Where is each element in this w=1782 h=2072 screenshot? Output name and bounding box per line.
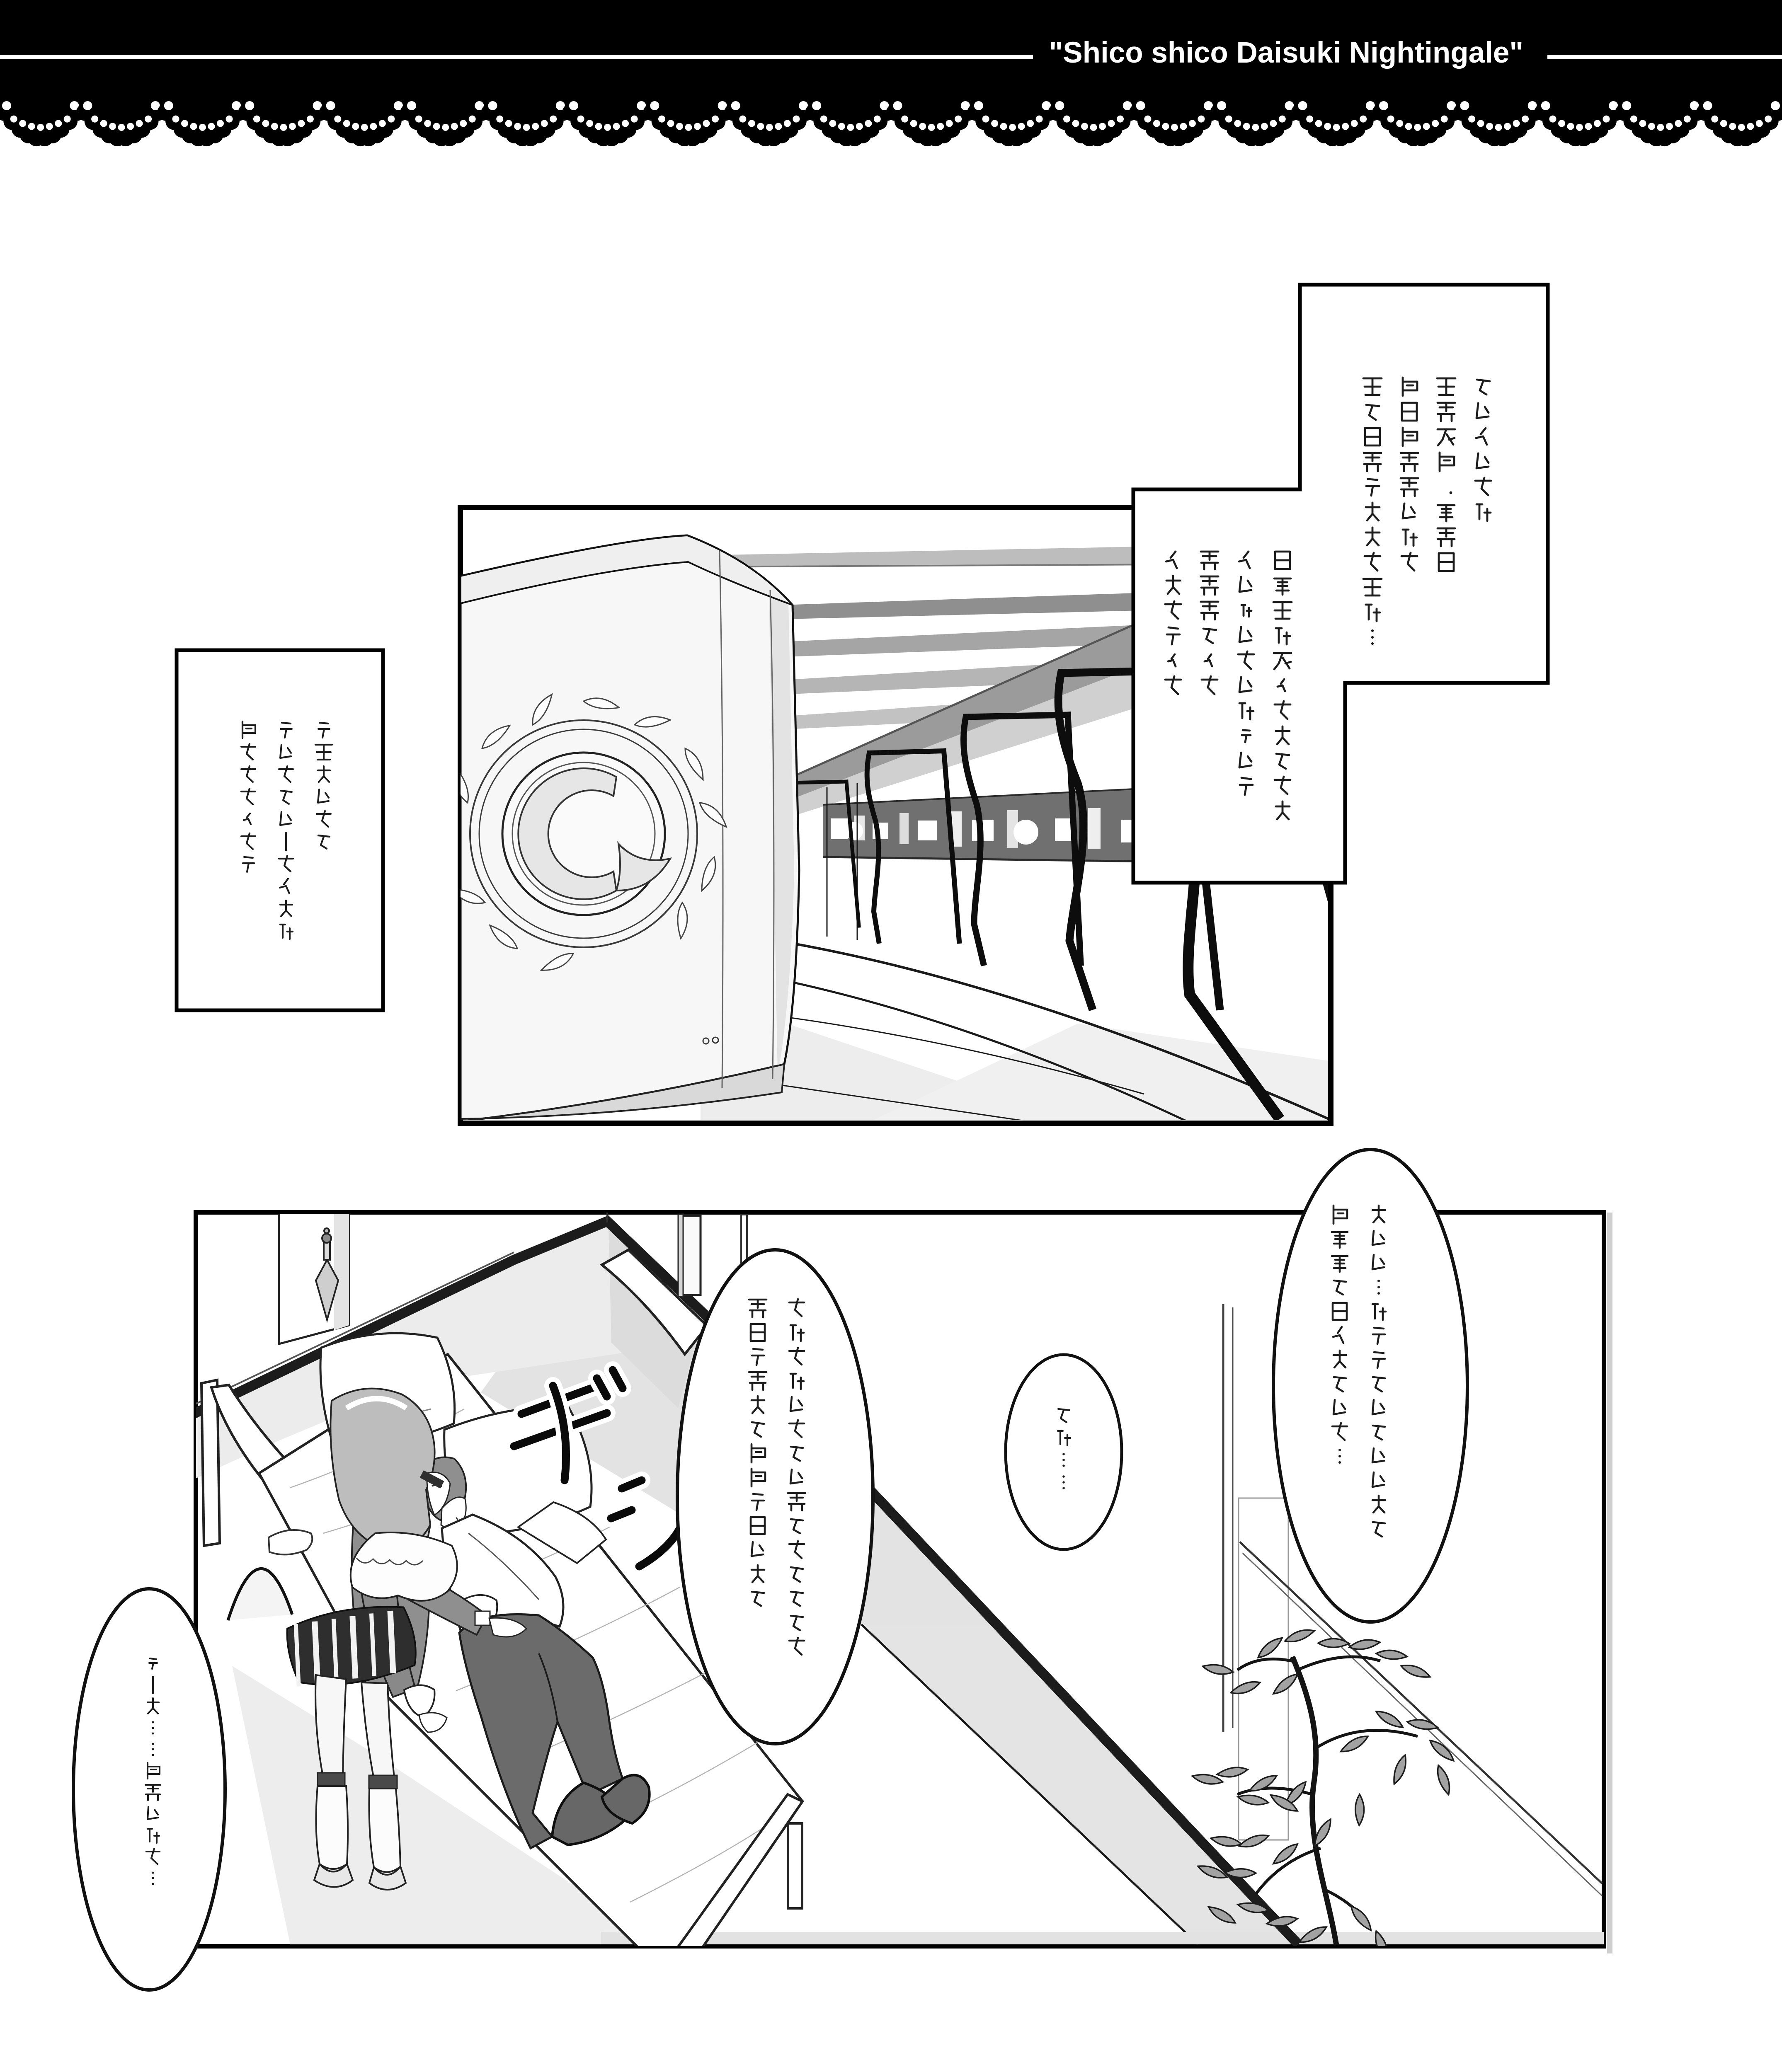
svg-text:"Shico shico Daisuki Nightinga: "Shico shico Daisuki Nightingale" (1049, 36, 1523, 69)
